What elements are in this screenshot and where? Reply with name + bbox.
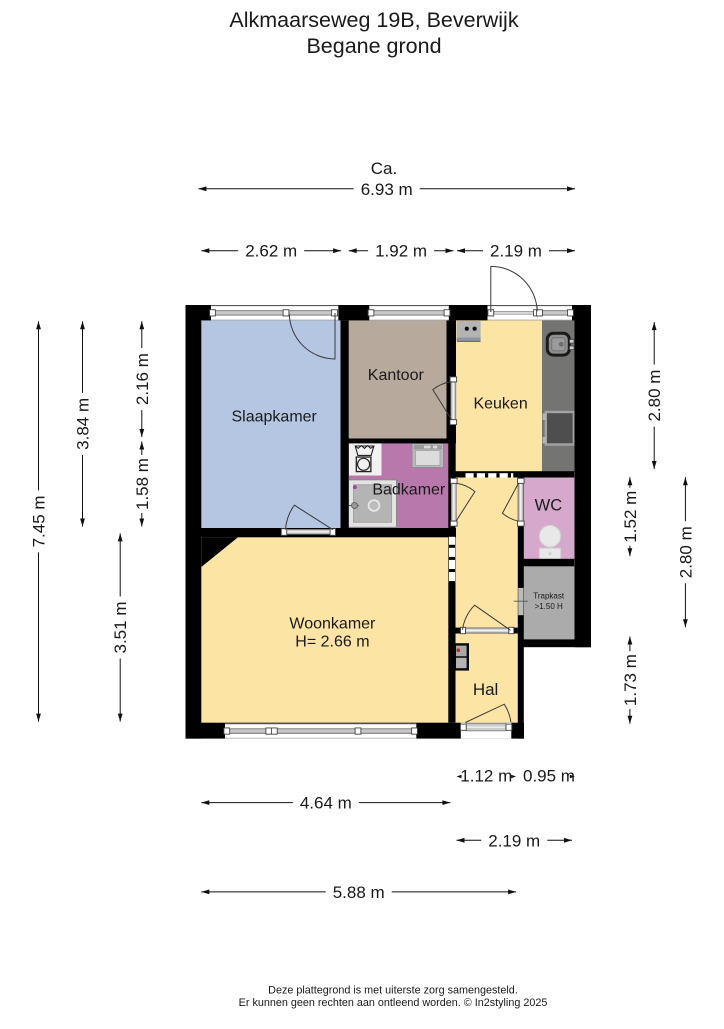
svg-text:2.80 m: 2.80 m xyxy=(645,370,664,422)
svg-text:>1.50 H: >1.50 H xyxy=(535,602,563,611)
svg-text:Hal: Hal xyxy=(473,680,499,699)
svg-text:Alkmaarseweg 19B, Beverwijk: Alkmaarseweg 19B, Beverwijk xyxy=(229,8,518,32)
svg-text:1.12 m: 1.12 m xyxy=(460,767,512,786)
svg-text:Woonkamer: Woonkamer xyxy=(289,616,376,633)
svg-text:4.64 m: 4.64 m xyxy=(300,794,352,813)
svg-text:6.93 m: 6.93 m xyxy=(361,180,413,199)
svg-text:Badkamer: Badkamer xyxy=(372,482,446,499)
svg-text:5.88 m: 5.88 m xyxy=(333,883,385,902)
svg-text:2.80 m: 2.80 m xyxy=(676,526,695,578)
svg-text:7.45 m: 7.45 m xyxy=(30,495,49,547)
svg-text:2.19 m: 2.19 m xyxy=(488,831,540,850)
svg-text:Slaapkamer: Slaapkamer xyxy=(232,408,318,425)
svg-text:2.19 m: 2.19 m xyxy=(490,242,542,261)
svg-text:3.51 m: 3.51 m xyxy=(111,602,130,654)
svg-text:Er kunnen geen rechten aan ont: Er kunnen geen rechten aan ontleend word… xyxy=(239,997,548,1009)
svg-text:Trapkast: Trapkast xyxy=(533,591,565,600)
svg-text:1.52 m: 1.52 m xyxy=(621,491,640,543)
svg-text:2.16 m: 2.16 m xyxy=(133,353,152,405)
svg-text:0.95 m: 0.95 m xyxy=(523,767,575,786)
svg-text:Ca.: Ca. xyxy=(371,159,397,178)
svg-text:1.73 m: 1.73 m xyxy=(621,654,640,706)
svg-text:2.62 m: 2.62 m xyxy=(245,242,297,261)
svg-text:Begane grond: Begane grond xyxy=(306,34,441,58)
svg-text:3.84 m: 3.84 m xyxy=(74,398,93,450)
svg-text:WC: WC xyxy=(535,496,563,514)
svg-text:H= 2.66 m: H= 2.66 m xyxy=(295,634,369,651)
svg-text:1.92 m: 1.92 m xyxy=(375,242,427,261)
svg-text:Kantoor: Kantoor xyxy=(368,367,425,384)
svg-text:Deze plattegrond is met uiters: Deze plattegrond is met uiterste zorg sa… xyxy=(268,985,518,997)
svg-text:1.58 m: 1.58 m xyxy=(133,458,152,510)
svg-text:Keuken: Keuken xyxy=(473,395,527,412)
